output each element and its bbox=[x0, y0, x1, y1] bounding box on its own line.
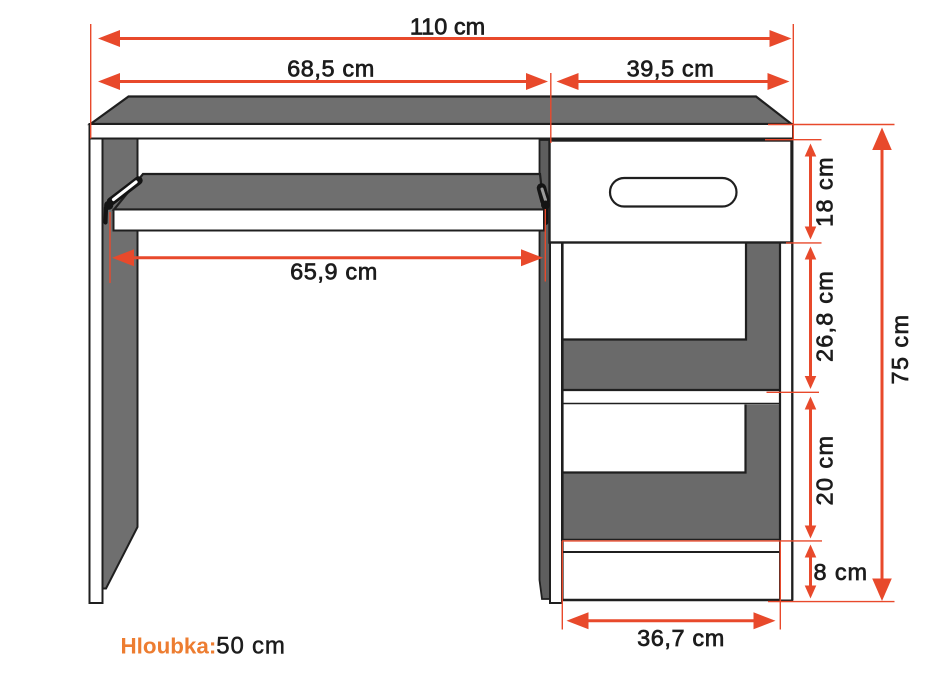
svg-text:36,7 cm: 36,7 cm bbox=[637, 625, 725, 651]
svg-text:18 cm: 18 cm bbox=[811, 156, 837, 227]
svg-text:20 cm: 20 cm bbox=[811, 435, 837, 506]
svg-text:65,9 cm: 65,9 cm bbox=[290, 259, 378, 285]
svg-text:110 cm: 110 cm bbox=[410, 14, 485, 40]
svg-text:68,5 cm: 68,5 cm bbox=[287, 56, 375, 82]
svg-text:39,5 cm: 39,5 cm bbox=[627, 56, 715, 82]
svg-text:26,8 cm: 26,8 cm bbox=[811, 270, 837, 362]
svg-text:8 cm: 8 cm bbox=[814, 559, 869, 585]
svg-text:Hloubka:50 cm: Hloubka:50 cm bbox=[121, 633, 286, 660]
svg-text:75 cm: 75 cm bbox=[887, 314, 913, 385]
